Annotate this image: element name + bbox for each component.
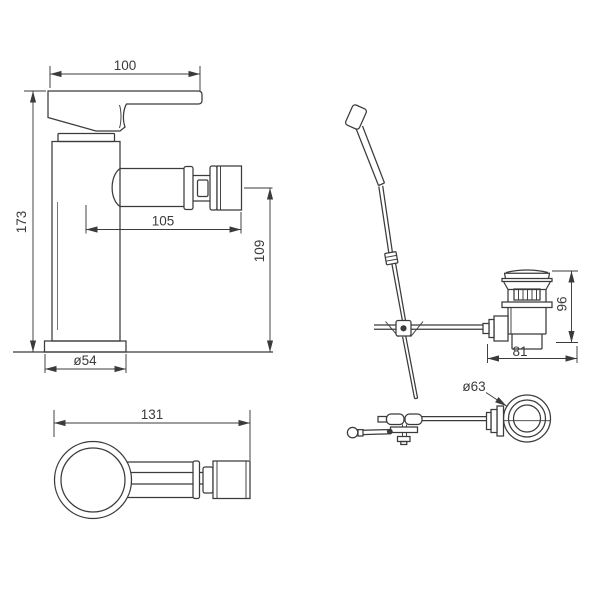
clamp-crossbar: [391, 427, 418, 433]
flange: [502, 279, 552, 290]
rod-clamp: [386, 321, 424, 337]
clamp-pivot-dot-plan: [387, 429, 393, 435]
lever-handle-outline: [48, 91, 202, 131]
rod-fitting-outer: [494, 316, 508, 341]
dim-label-spout-height: 109: [252, 240, 267, 263]
drawing-sheet: 100 173 105: [0, 0, 600, 600]
clamp-foot-nub: [401, 442, 407, 445]
dim-spout-height: 109: [244, 188, 273, 352]
dim-label-waste-height: 96: [555, 296, 570, 311]
dim-handle-width: 100: [50, 58, 200, 92]
dim-label-spout-reach: 105: [152, 214, 175, 229]
body-ring: [502, 302, 552, 308]
flange-outer-circle: [504, 395, 551, 442]
dim-overall-height: 173: [14, 91, 46, 352]
spout-outer-edges: [127, 462, 193, 498]
dim-label-flange-diameter: ø63: [462, 379, 485, 394]
clamp-capsule-right: [405, 414, 422, 425]
base-plate: [45, 341, 127, 352]
faucet-top-view: 131: [54, 407, 250, 519]
lever-rod-plan: [422, 417, 487, 421]
dim-overall-length: 131: [54, 407, 250, 460]
spout-ring-1: [184, 167, 193, 210]
faucet-side-view: 100 173 105: [13, 58, 273, 373]
clamp-pivot-dot: [400, 325, 406, 331]
spout-cylinder: [112, 169, 184, 207]
spout-neck-detail: [198, 180, 209, 197]
rod-fitting-stem: [483, 324, 489, 334]
dim-label-base-diameter: ø54: [73, 353, 97, 368]
spout-inner-edges: [131, 473, 203, 485]
fitting-plan-stem: [487, 413, 492, 430]
spout: [112, 166, 241, 210]
spout-ring-band: [193, 461, 200, 499]
spout-neck-plan: [203, 467, 213, 493]
body-inner-circle: [61, 448, 125, 512]
leader-line: [486, 393, 507, 407]
rod-fitting-mid: [489, 320, 494, 338]
dim-label-overall-length: 131: [141, 407, 164, 422]
pull-rod-knob: [345, 104, 368, 130]
dim-label-overall-height: 173: [14, 211, 29, 234]
dim-waste-width: 81: [488, 344, 578, 363]
ball-rod: [363, 430, 390, 435]
dim-label-waste-width: 81: [512, 344, 527, 359]
technical-drawing-canvas: 100 173 105: [0, 0, 600, 600]
cartridge-collar: [58, 134, 115, 142]
sleeve-body: [385, 252, 398, 265]
clamp-capsule-left: [387, 414, 405, 425]
faucet-body: [52, 142, 120, 342]
rib-lines: [519, 289, 537, 300]
aerator-tip-plan: [213, 461, 250, 499]
rod-coupling-sleeve: [385, 252, 398, 265]
handle-seam: [120, 105, 122, 128]
waste-side-view: 96 81: [345, 104, 578, 399]
flange-inner-circle: [514, 405, 541, 432]
linkage-plan: [347, 414, 486, 445]
lower-body: [508, 308, 546, 335]
dim-base-diameter: ø54: [45, 353, 126, 373]
waste-top-view: ø63: [347, 379, 551, 445]
waste-flange-plan: [487, 395, 552, 442]
spout-ring-2: [210, 166, 217, 210]
fitting-plan-outer: [497, 406, 504, 436]
spout-plan: [127, 461, 250, 499]
pull-rod: [345, 104, 418, 399]
dim-extension-lines: [488, 344, 578, 363]
dim-label-handle-width: 100: [114, 58, 137, 73]
dim-waste-height: 96: [552, 271, 578, 343]
rod-ball-end: [347, 427, 357, 437]
dim-flange-diameter: ø63: [462, 379, 506, 406]
body-outer-circle: [55, 442, 132, 519]
clamp-tab: [378, 417, 387, 423]
ball-neck: [358, 430, 363, 436]
waste-body: [483, 270, 552, 349]
plug-cap: [504, 270, 550, 279]
fitting-plan-mid: [491, 410, 497, 433]
clamp-foot: [398, 437, 411, 442]
